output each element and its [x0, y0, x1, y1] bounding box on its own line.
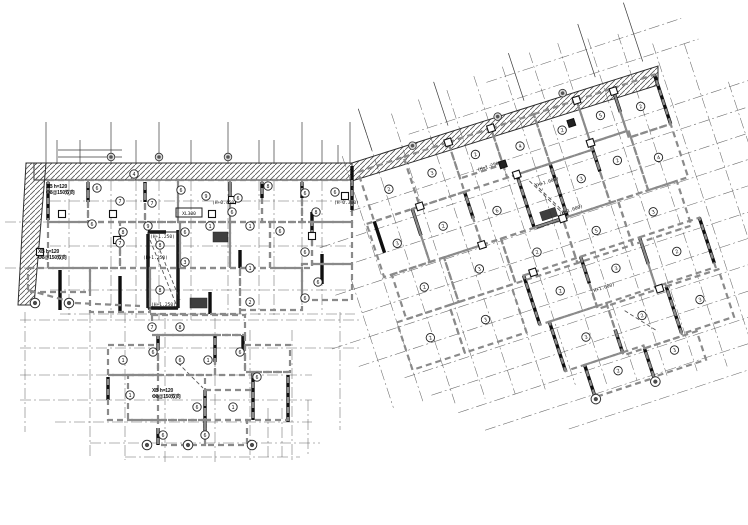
svg-text:6: 6 — [303, 250, 306, 256]
slab-number-bubble: 2 — [246, 298, 254, 306]
svg-text:7: 7 — [118, 241, 121, 247]
slab-number-bubble: 3 — [648, 206, 659, 217]
svg-text:6: 6 — [178, 358, 181, 364]
slab-panel — [48, 222, 120, 268]
slab-number-bubble: 2 — [419, 282, 430, 293]
pile-marker — [142, 440, 152, 450]
slab-number-bubble: 2 — [612, 155, 623, 166]
grid-bubble — [155, 153, 163, 161]
svg-text:8: 8 — [158, 243, 161, 249]
floor-plan-canvas: 4677696866686896116783166826XB h=120Φ8@1… — [0, 0, 748, 525]
svg-text:6: 6 — [316, 280, 319, 286]
slab-number-bubble: 1 — [206, 222, 214, 230]
slab-number-bubble: 1 — [246, 222, 254, 230]
svg-text:1: 1 — [121, 358, 124, 364]
slab-number-bubble: 3 — [480, 314, 491, 325]
annotation-text: (H+1.250) — [150, 234, 175, 240]
slab-number-bubble: 3 — [427, 168, 438, 179]
slab-number-bubble: 6 — [314, 278, 322, 286]
slab-number-bubble: 8 — [264, 182, 272, 190]
shaft-fill — [213, 232, 228, 242]
column-marker — [487, 124, 496, 133]
slab-number-bubble: 6 — [301, 294, 309, 302]
annotation-text: (H+1.250) — [477, 160, 503, 173]
slab-number-bubble: 1 — [126, 391, 134, 399]
svg-text:6: 6 — [90, 222, 93, 228]
annotation-text: Φ8@150双向 — [38, 254, 67, 261]
column-marker — [342, 193, 349, 200]
top-wall-band — [34, 163, 352, 180]
column-marker — [609, 87, 618, 96]
slab-panel — [152, 315, 245, 335]
column-marker — [110, 211, 117, 218]
slab-number-bubble: 3 — [581, 332, 592, 343]
svg-text:1: 1 — [248, 224, 251, 230]
slab-number-bubble: 6 — [159, 431, 167, 439]
floor-plan-svg: 4677696866686896116783166826XB h=120Φ8@1… — [0, 0, 748, 525]
pile-marker — [64, 298, 74, 308]
svg-text:6: 6 — [203, 433, 206, 439]
slab-panel — [302, 264, 352, 300]
svg-text:6: 6 — [183, 230, 186, 236]
svg-text:8: 8 — [314, 210, 317, 216]
slab-number-bubble: 7 — [148, 323, 156, 331]
annotation-text: (H+1.250) — [151, 302, 176, 308]
slab-number-bubble: 6 — [93, 184, 101, 192]
svg-text:8: 8 — [158, 288, 161, 294]
svg-text:6: 6 — [195, 405, 198, 411]
pile-marker — [649, 376, 661, 388]
slab-number-bubble: 7 — [148, 199, 156, 207]
shaft-fill — [190, 298, 207, 308]
column-marker — [567, 118, 576, 127]
pile-marker — [183, 440, 193, 450]
svg-text:6: 6 — [179, 188, 182, 194]
svg-text:9: 9 — [146, 224, 149, 230]
column-marker — [59, 211, 66, 218]
svg-text:3: 3 — [183, 260, 186, 266]
svg-text:9: 9 — [204, 194, 207, 200]
column-marker — [309, 233, 316, 240]
grid-bubble — [107, 153, 115, 161]
slab-number-bubble: 2 — [425, 332, 436, 343]
annotation-text: (H+0.450) — [212, 200, 237, 206]
slab-number-bubble: 8 — [119, 228, 127, 236]
slab-number-bubble: 3 — [392, 238, 403, 249]
slab-number-bubble: 3 — [181, 258, 189, 266]
annotation-text: XL300 — [182, 211, 196, 217]
annotation-text: (H-0.300) — [334, 200, 359, 206]
slab-number-bubble: 3 — [669, 345, 680, 356]
svg-text:6: 6 — [303, 191, 306, 197]
slab-number-bubble: 2 — [555, 285, 566, 296]
bottom-wing-layer: 7816616161666XB h=120Φ8@150双向 — [108, 315, 290, 450]
slab-number-bubble: 8 — [156, 241, 164, 249]
slab-number-bubble: 6 — [301, 248, 309, 256]
slab-number-bubble: 6 — [331, 188, 339, 196]
slab-number-bubble: 6 — [176, 356, 184, 364]
svg-text:2: 2 — [248, 300, 251, 306]
slab-panel — [312, 222, 352, 264]
column-marker — [529, 268, 538, 277]
svg-text:8: 8 — [266, 184, 269, 190]
slab-number-bubble: 5 — [591, 225, 602, 236]
slab-panel — [245, 345, 290, 372]
slab-number-bubble: 3 — [576, 173, 587, 184]
svg-text:1: 1 — [231, 405, 234, 411]
svg-text:6: 6 — [303, 296, 306, 302]
slab-number-bubble: 2 — [438, 221, 449, 232]
slab-number-bubble: 6 — [236, 348, 244, 356]
slab-number-bubble: 6 — [193, 403, 201, 411]
slab-number-bubble: 1 — [246, 264, 254, 272]
slab-number-bubble: 4 — [653, 152, 664, 163]
slab-number-bubble: 9 — [202, 192, 210, 200]
annotation-text: Φ8@150双向 — [152, 393, 181, 400]
svg-text:7: 7 — [150, 325, 153, 331]
slab-number-bubble: 9 — [144, 222, 152, 230]
svg-text:6: 6 — [238, 350, 241, 356]
slab-number-bubble: 6 — [181, 228, 189, 236]
annotation-text: Φ8@150双向 — [46, 189, 75, 196]
slab-number-bubble: 7 — [116, 197, 124, 205]
svg-text:6: 6 — [151, 350, 154, 356]
slab-number-bubble: 3 — [474, 264, 485, 275]
slab-number-bubble: 5 — [595, 110, 606, 121]
slab-number-bubble: 6 — [88, 220, 96, 228]
wall-hatch-layer — [18, 66, 658, 305]
slab-number-bubble: 1 — [119, 356, 127, 364]
shaft-fill — [540, 207, 558, 221]
slab-number-bubble: 2 — [470, 149, 481, 160]
svg-text:6: 6 — [161, 433, 164, 439]
slab-number-bubble: 8 — [156, 286, 164, 294]
grid-bubble — [224, 153, 232, 161]
column-marker — [415, 202, 424, 211]
column-marker — [444, 138, 453, 147]
slab-number-bubble: 2 — [671, 246, 682, 257]
svg-text:6: 6 — [255, 375, 258, 381]
slab-number-bubble: 6 — [228, 208, 236, 216]
column-marker — [586, 138, 595, 147]
annotation-text: (H+1.250) — [143, 255, 168, 261]
column-marker — [655, 284, 664, 293]
slab-number-bubble: 3 — [695, 294, 706, 305]
left-retaining-wall — [18, 163, 46, 305]
slab-number-bubble: 1 — [204, 356, 212, 364]
svg-text:7: 7 — [118, 199, 121, 205]
svg-text:6: 6 — [95, 186, 98, 192]
svg-text:1: 1 — [206, 358, 209, 364]
slab-number-bubble: 1 — [229, 403, 237, 411]
svg-text:1: 1 — [248, 266, 251, 272]
slab-number-bubble: 6 — [177, 186, 185, 194]
annotation-text: (H+1.000) — [590, 282, 616, 295]
slab-number-bubble: 6 — [253, 373, 261, 381]
slab-number-bubble: 2 — [532, 247, 543, 258]
slab-number-bubble: 2 — [635, 101, 646, 112]
left-wing-layer: 4677696866686896116783166826XB h=120Φ8@1… — [28, 122, 359, 320]
pile-marker — [247, 440, 257, 450]
slab-number-bubble: 2 — [384, 184, 395, 195]
svg-text:6: 6 — [236, 196, 239, 202]
svg-text:4: 4 — [132, 172, 135, 178]
slab-number-bubble: 2 — [557, 125, 568, 136]
slab-number-bubble: 2 — [613, 365, 624, 376]
slab-number-bubble: 4 — [515, 141, 526, 152]
slab-number-bubble: 6 — [201, 431, 209, 439]
slab-number-bubble: 7 — [116, 239, 124, 247]
svg-text:1: 1 — [128, 393, 131, 399]
column-marker — [512, 170, 521, 179]
svg-text:8: 8 — [178, 325, 181, 331]
slab-number-bubble: 6 — [276, 227, 284, 235]
svg-text:6: 6 — [333, 190, 336, 196]
column-marker — [209, 211, 216, 218]
pile-marker — [30, 298, 40, 308]
column-marker — [572, 96, 581, 105]
svg-text:6: 6 — [278, 229, 281, 235]
svg-text:8: 8 — [121, 230, 124, 236]
slab-number-bubble: 8 — [312, 208, 320, 216]
slab-number-bubble: 3 — [611, 263, 622, 274]
slab-number-bubble: 4 — [130, 170, 138, 178]
slab-number-bubble: 8 — [176, 323, 184, 331]
slab-number-bubble: 6 — [149, 348, 157, 356]
svg-text:1: 1 — [208, 224, 211, 230]
slab-number-bubble: 6 — [492, 205, 503, 216]
slab-panel — [205, 420, 247, 445]
slab-panel — [158, 335, 215, 375]
column-marker — [478, 241, 487, 250]
svg-text:6: 6 — [230, 210, 233, 216]
svg-text:7: 7 — [150, 201, 153, 207]
slab-number-bubble: 6 — [301, 189, 309, 197]
